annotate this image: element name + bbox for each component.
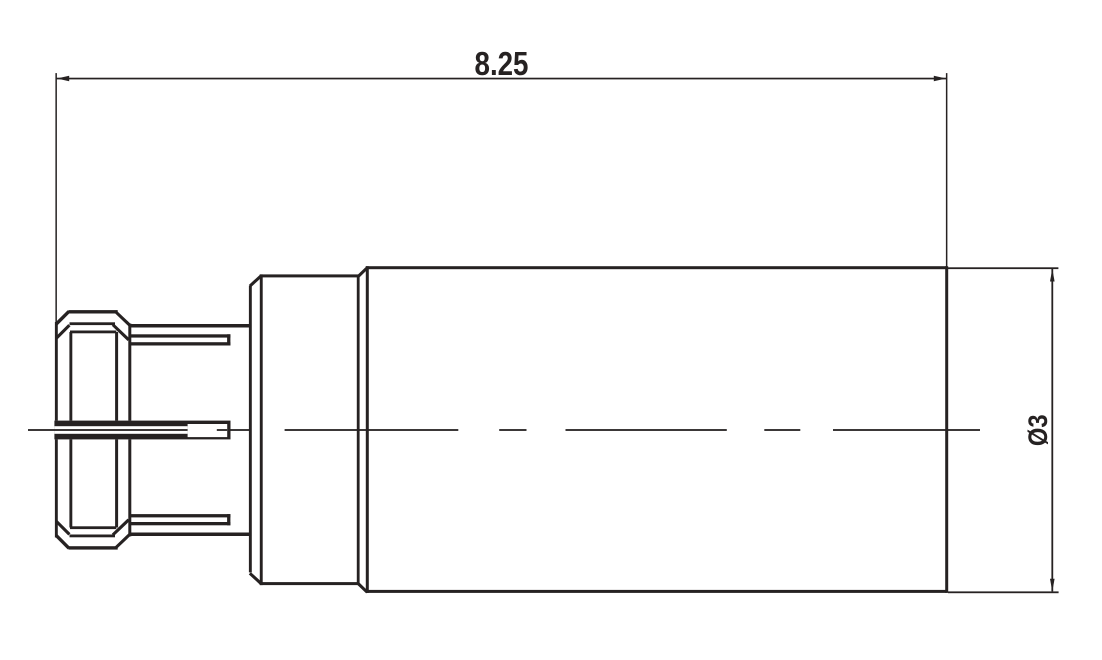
svg-text:8.25: 8.25 <box>475 46 529 83</box>
svg-text:Ø3: Ø3 <box>1023 414 1053 446</box>
